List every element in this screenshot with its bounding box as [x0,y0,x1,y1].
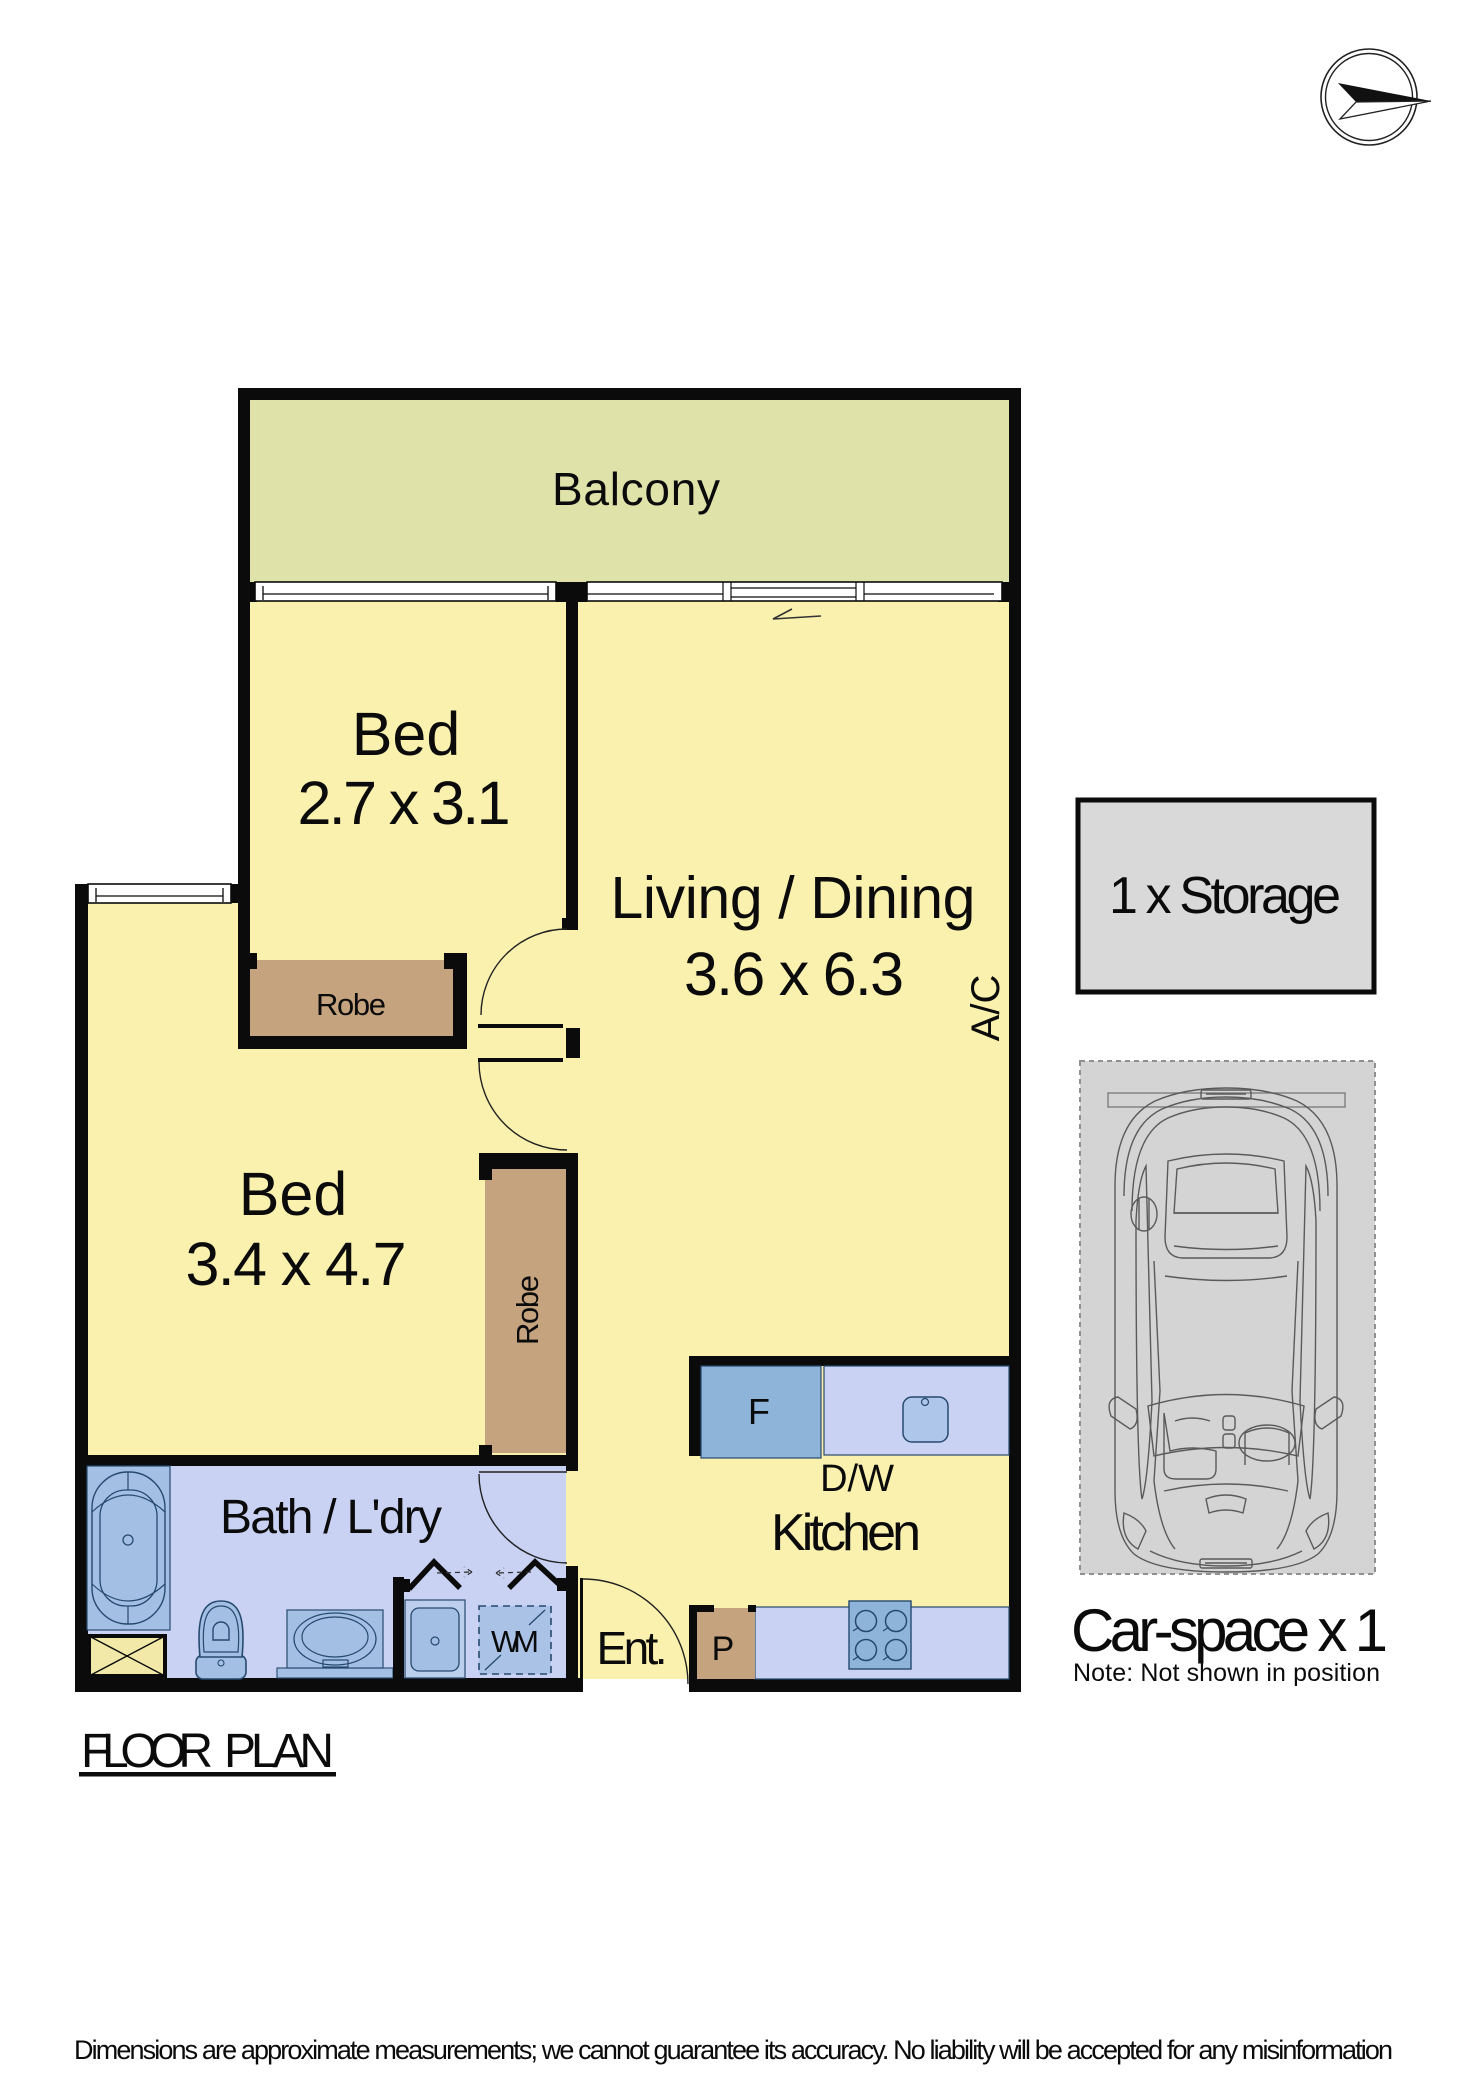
svg-text:Car-space x 1: Car-space x 1 [1071,1597,1387,1664]
svg-text:P: P [712,1630,735,1668]
svg-text:1 x Storage: 1 x Storage [1109,867,1341,925]
svg-text:Kitchen: Kitchen [771,1504,921,1562]
svg-text:Robe: Robe [316,987,386,1022]
svg-text:A/C: A/C [964,975,1008,1042]
svg-text:F: F [748,1391,770,1432]
svg-text:2.7 x 3.1: 2.7 x 3.1 [298,769,511,837]
svg-text:3.6 x 6.3: 3.6 x 6.3 [684,940,904,1008]
svg-text:Ent.: Ent. [597,1622,668,1674]
svg-text:Living / Dining: Living / Dining [611,865,976,931]
svg-text:Bath / L'dry: Bath / L'dry [220,1491,442,1544]
svg-text:PLAN: PLAN [224,1725,334,1778]
svg-text:3.4 x 4.7: 3.4 x 4.7 [186,1230,407,1298]
svg-text:WM: WM [491,1624,539,1659]
svg-text:FLOOR: FLOOR [81,1725,213,1778]
svg-text:Balcony: Balcony [552,463,720,515]
svg-text:D/W: D/W [820,1458,894,1500]
svg-text:Dimensions are approximate mea: Dimensions are approximate measurements;… [74,2035,1393,2065]
svg-text:Bed: Bed [239,1160,348,1228]
svg-text:Note: Not shown in position: Note: Not shown in position [1073,1659,1380,1687]
svg-text:Robe: Robe [510,1275,545,1345]
svg-text:Bed: Bed [352,700,461,768]
